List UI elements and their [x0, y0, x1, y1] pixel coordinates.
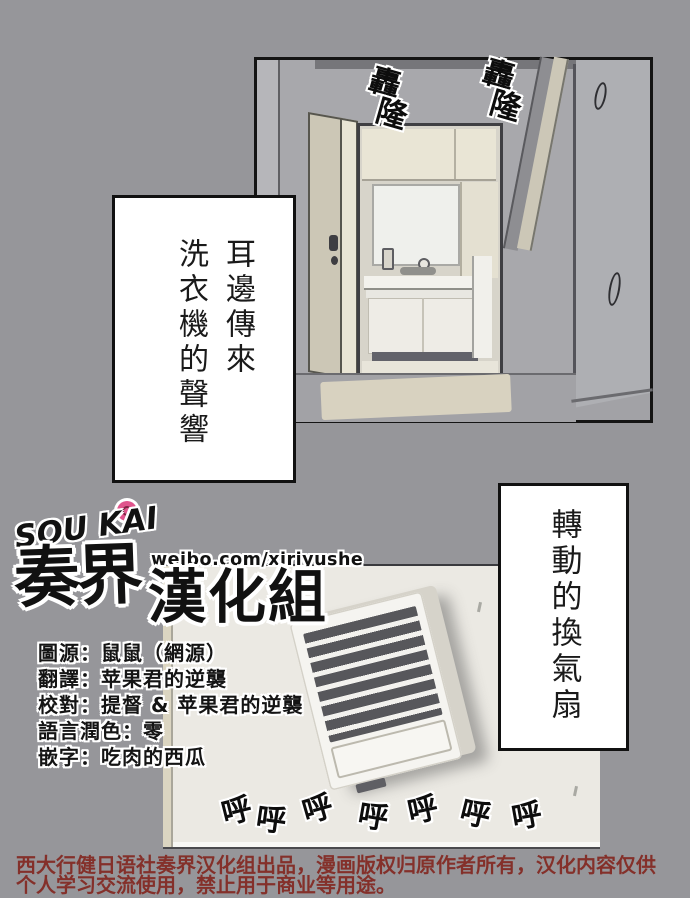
- logo-name-main: 奏界: [13, 542, 141, 612]
- logo-name-rest: 漢化組: [148, 568, 328, 626]
- door-lock: [331, 256, 338, 265]
- caption-box-right: 轉動的換氣扇: [498, 483, 629, 751]
- credit-line-source: 圖源：鼠鼠（網源）: [38, 640, 303, 666]
- sfx-breeze: 呼: [356, 801, 391, 836]
- door-handle: [329, 235, 338, 251]
- vanity-divider: [422, 298, 424, 352]
- caption-box-left: 耳邊傳來 洗衣機的聲響: [112, 195, 296, 483]
- credit-line-typeset: 嵌字：吃肉的西瓜: [38, 744, 303, 770]
- vanity-cabinet: [368, 298, 480, 354]
- copyright-line-2: 个人学习交流使用，禁止用于商业等用途。: [16, 869, 396, 898]
- caption-text: 耳邊傳來 洗衣機的聲響: [167, 238, 261, 448]
- sfx-breeze: 呼: [405, 793, 441, 829]
- cabinet-divider: [454, 129, 456, 179]
- washroom-doorway: [357, 123, 503, 376]
- panel-hallway-scene: 轟 隆 轟 隆: [254, 57, 653, 423]
- ventilation-fan: [308, 597, 456, 792]
- washroom-floor: [362, 361, 498, 373]
- door-edge: [340, 118, 358, 381]
- soap-bottle: [382, 248, 394, 270]
- sfx-breeze: 呼: [254, 804, 288, 838]
- credits-list: 圖源：鼠鼠（網源） 翻譯：苹果君的逆襲 校對：提督 & 苹果君的逆襲 語言潤色：…: [38, 640, 303, 770]
- credit-line-polish: 語言潤色：零: [38, 718, 303, 744]
- credit-line-proof: 校對：提督 & 苹果君的逆襲: [38, 692, 303, 718]
- wall-pillar: [472, 256, 492, 358]
- sfx-breeze: 呼: [510, 800, 545, 835]
- overhead-cabinet: [362, 129, 496, 181]
- caption-line: 耳邊傳來: [214, 238, 261, 448]
- faucet: [400, 267, 436, 275]
- caption-text: 轉動的換氣扇: [544, 508, 584, 724]
- kick-space: [372, 352, 478, 361]
- closet-door: [576, 60, 650, 420]
- credit-line-translate: 翻譯：苹果君的逆襲: [38, 666, 303, 692]
- caption-line: 洗衣機的聲響: [167, 238, 214, 448]
- sfx-char: 隆: [486, 88, 524, 126]
